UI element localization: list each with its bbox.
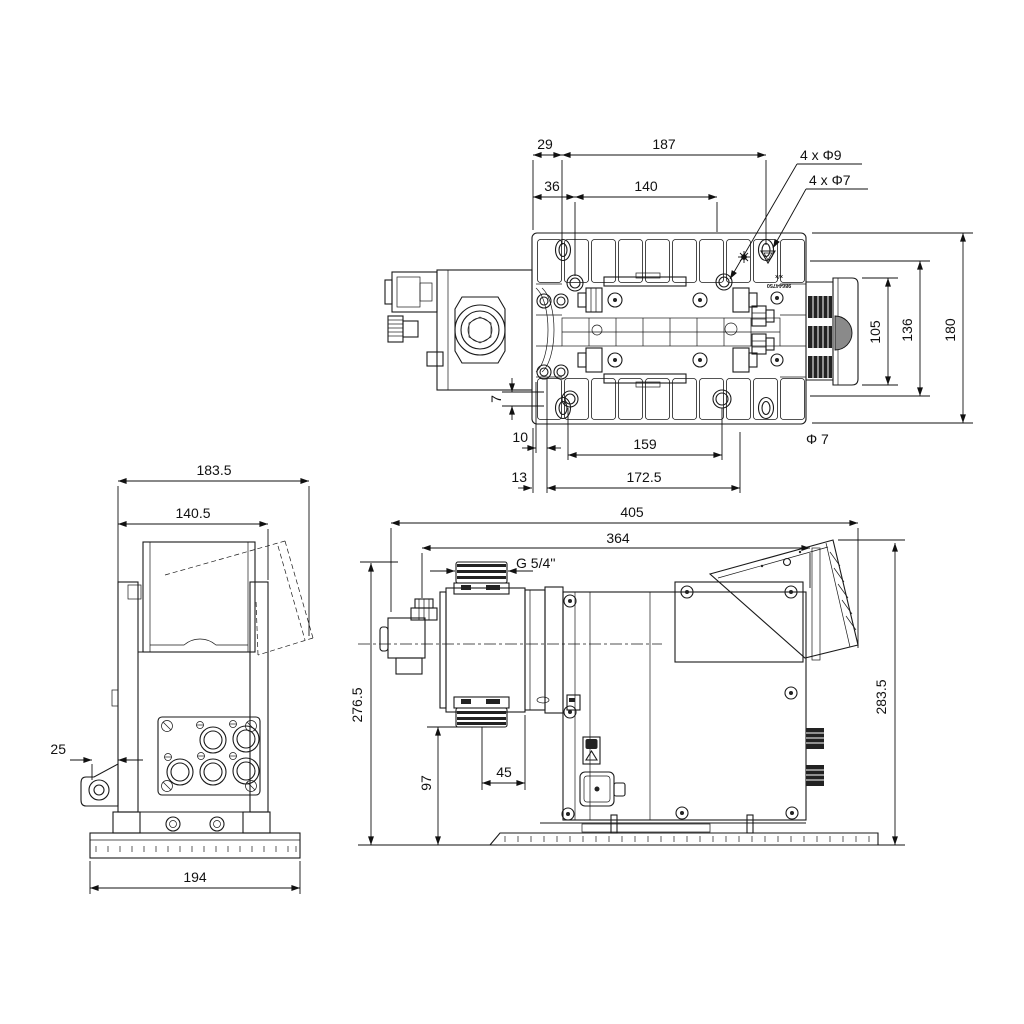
plug-icon bbox=[586, 739, 598, 749]
dim-label-phi7: Φ 7 bbox=[806, 431, 829, 447]
dim-label-194: 194 bbox=[183, 869, 207, 885]
dim-label-364: 364 bbox=[606, 530, 630, 546]
engineering-drawing-canvas: x/x 98644750 bbox=[0, 0, 1024, 1024]
suction-thread-top bbox=[454, 562, 509, 594]
callout-label-4xphi9: 4 x Φ9 bbox=[800, 147, 842, 163]
dim-label-13: 13 bbox=[511, 469, 527, 485]
dim-label-g54: G 5/4'' bbox=[516, 555, 556, 571]
dim-label-105: 105 bbox=[867, 320, 883, 344]
dim-label-25: 25 bbox=[50, 741, 66, 757]
dim-label-136: 136 bbox=[899, 318, 915, 342]
control-panel-open bbox=[710, 540, 858, 660]
dim-g54: G 5/4'' bbox=[430, 555, 556, 571]
vent-knob-top bbox=[388, 316, 418, 342]
side-knobs bbox=[806, 728, 824, 786]
side-knob-panel-top bbox=[806, 278, 858, 385]
top-plan-view: x/x 98644750 bbox=[385, 136, 973, 493]
hose-connectors bbox=[592, 306, 774, 354]
power-connector bbox=[580, 772, 625, 806]
wall-bracket bbox=[81, 764, 118, 806]
dim-label-140: 140 bbox=[634, 178, 658, 194]
discharge-thread-bottom bbox=[454, 697, 509, 727]
right-side-view: 405 364 G 5/4'' 276.5 97 45 bbox=[349, 504, 905, 845]
dim-label-29: 29 bbox=[537, 136, 553, 152]
hmi-recess bbox=[675, 582, 803, 662]
dim-label-36: 36 bbox=[544, 178, 560, 194]
dim-187: 187 bbox=[562, 136, 766, 245]
callout-label-4xphi7: 4 x Φ7 bbox=[809, 172, 851, 188]
ribbed-connectors-top bbox=[808, 296, 832, 378]
pump-head-side bbox=[358, 562, 662, 727]
dim-276-5: 276.5 bbox=[349, 562, 497, 845]
technical-drawing-page: x/x 98644750 bbox=[0, 0, 1024, 1024]
dim-label-276-5: 276.5 bbox=[349, 687, 365, 722]
motor-connector-side bbox=[380, 599, 437, 674]
dim-label-172-5: 172.5 bbox=[626, 469, 661, 485]
open-cover-dashed bbox=[165, 541, 313, 655]
dim-label-159: 159 bbox=[633, 436, 657, 452]
dim-194: 194 bbox=[90, 861, 300, 894]
dim-label-183-5: 183.5 bbox=[196, 462, 231, 478]
warning-label bbox=[583, 737, 600, 764]
dim-105: 105 bbox=[862, 278, 898, 385]
dim-25: 25 bbox=[50, 741, 143, 780]
valve-face-plate bbox=[158, 717, 260, 795]
dim-283-5: 283.5 bbox=[838, 540, 905, 845]
dim-label-405: 405 bbox=[620, 504, 644, 520]
valve-ports bbox=[167, 726, 259, 785]
molded-stamp-line1: x/x bbox=[774, 273, 783, 279]
dim-label-10: 10 bbox=[512, 429, 528, 445]
warning-triangle-icon bbox=[586, 751, 597, 760]
dim-183-5: 183.5 bbox=[118, 462, 309, 636]
pump-head-top bbox=[385, 270, 532, 390]
plate-rib-grid-middle bbox=[536, 284, 806, 377]
dim-140: 140 bbox=[575, 178, 717, 232]
front-cover bbox=[128, 542, 255, 652]
dim-label-180: 180 bbox=[942, 318, 958, 342]
mounting-plate: x/x 98644750 bbox=[532, 233, 806, 424]
molded-stamp-line2: 98644750 bbox=[767, 282, 791, 288]
left-side-view: 183.5 140.5 25 194 bbox=[50, 462, 313, 894]
housing-body-side bbox=[562, 582, 824, 820]
dim-45: 45 bbox=[482, 715, 525, 790]
dim-label-45: 45 bbox=[496, 764, 512, 780]
dim-label-187: 187 bbox=[652, 136, 676, 152]
dial-knob-top bbox=[835, 316, 852, 350]
dim-label-283-5: 283.5 bbox=[873, 679, 889, 714]
dim-label-97: 97 bbox=[418, 775, 434, 791]
dim-label-7: 7 bbox=[488, 395, 504, 403]
base-left-view bbox=[90, 833, 300, 858]
dim-label-140-5: 140.5 bbox=[175, 505, 210, 521]
callout-4xphi7: 4 x Φ7 bbox=[773, 172, 868, 248]
dim-97: 97 bbox=[418, 727, 487, 845]
